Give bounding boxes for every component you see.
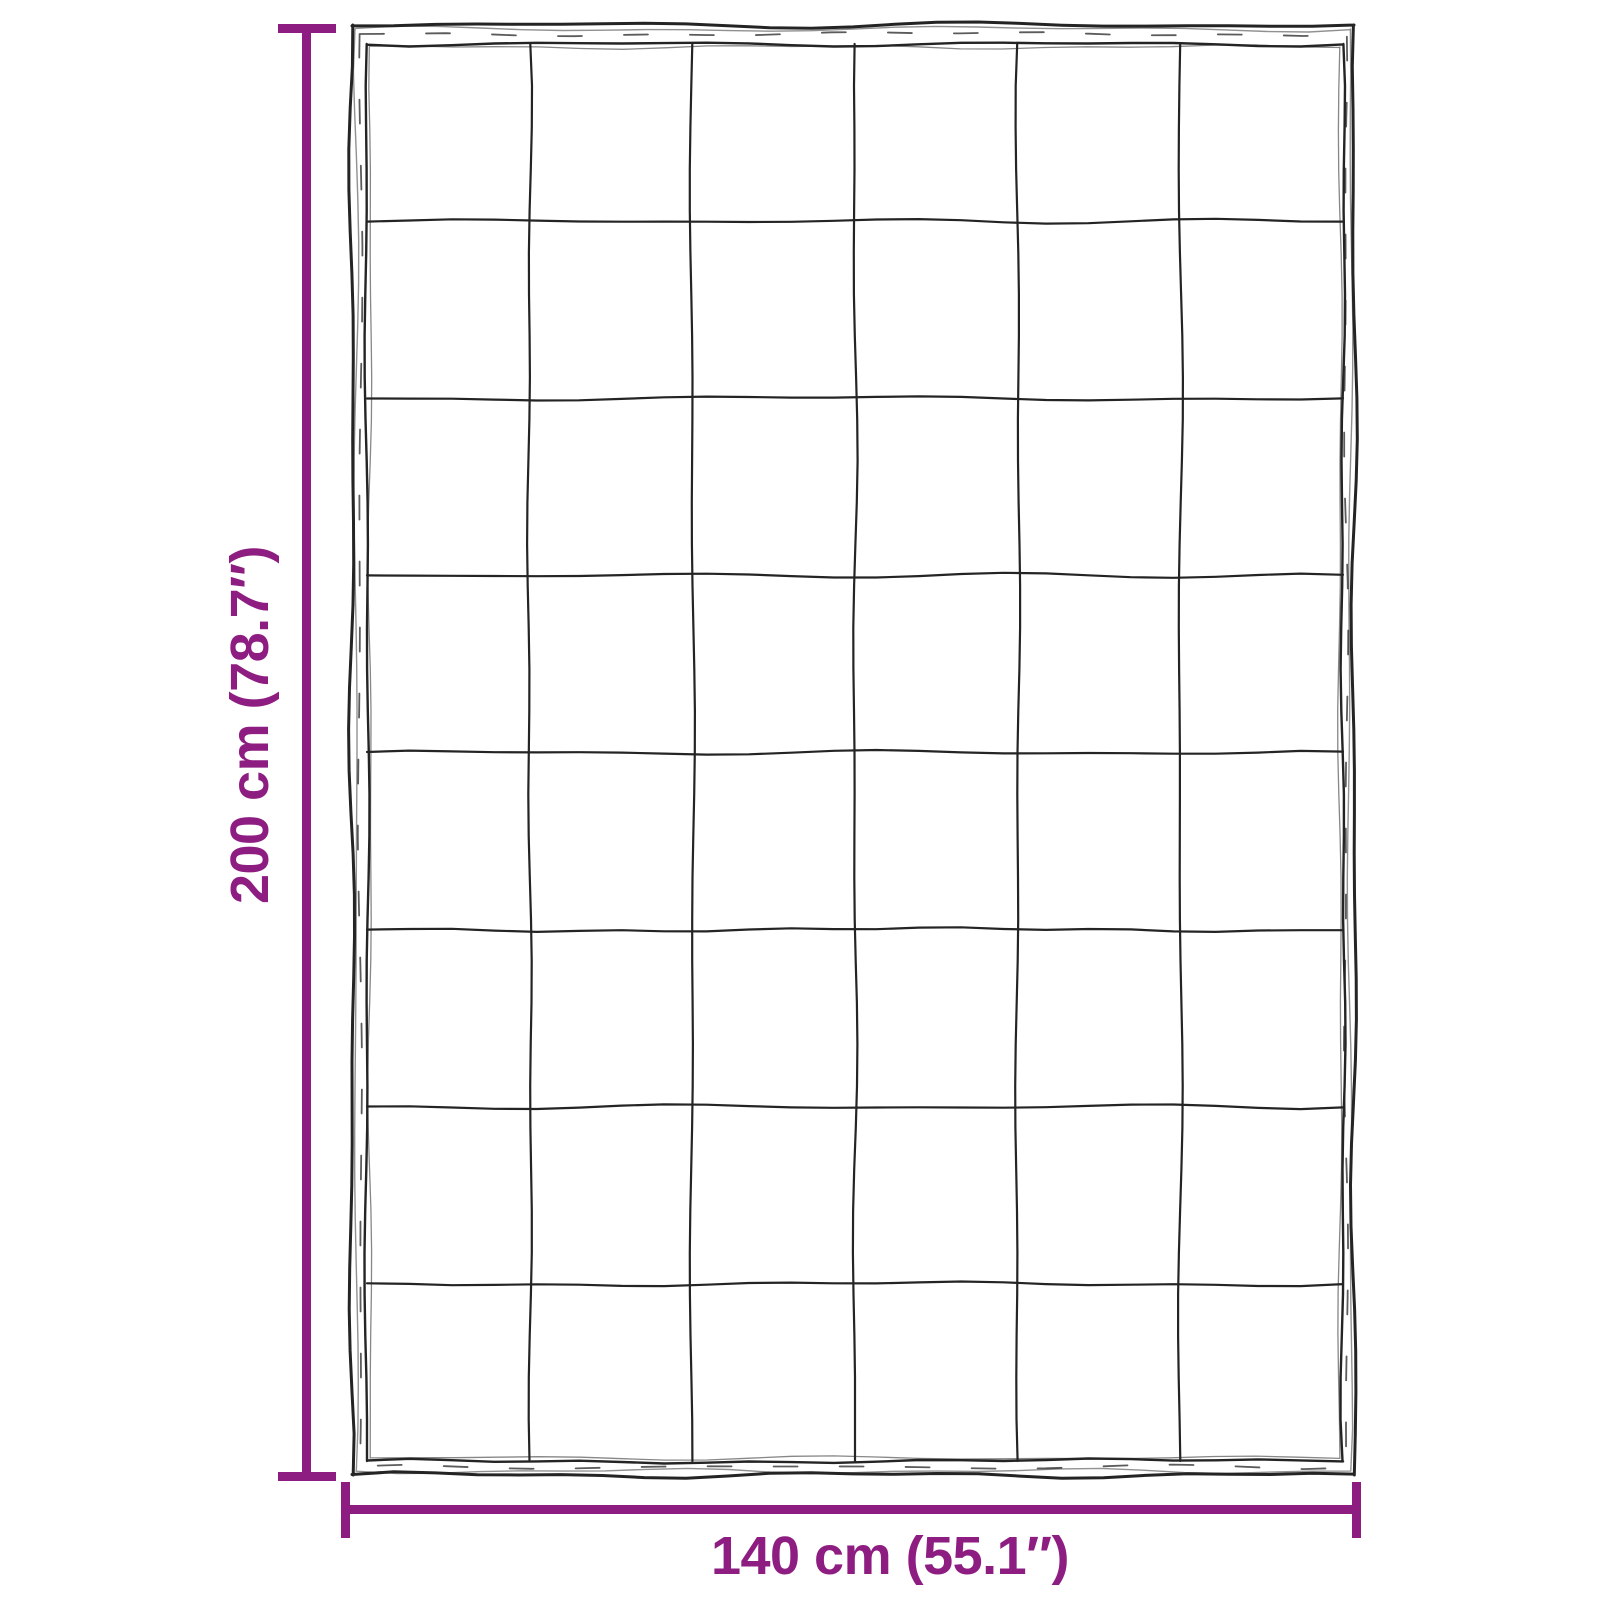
blanket-sketch-stroke (1178, 44, 1183, 1461)
width-dimension-label: 140 cm (55.1″) (711, 1529, 1069, 1583)
product-dimension-diagram: 200 cm (78.7″) 140 cm (55.1″) (0, 0, 1600, 1600)
width-dimension-cap-left (341, 1482, 350, 1538)
blanket-sketch-stroke (367, 1282, 1343, 1287)
height-dimension-label: 200 cm (78.7″) (223, 546, 277, 904)
blanket-sketch-stroke (367, 396, 1343, 400)
blanket-sketch-stroke (367, 1104, 1343, 1109)
blanket-sketch-stroke (853, 44, 858, 1461)
width-dimension-cap-right (1352, 1482, 1361, 1538)
height-dimension-line (302, 27, 311, 1477)
width-dimension-line (345, 1505, 1357, 1514)
height-dimension-cap-top (278, 24, 336, 33)
blanket-sketch-stroke (690, 44, 695, 1461)
height-dimension-cap-bottom (278, 1472, 336, 1481)
